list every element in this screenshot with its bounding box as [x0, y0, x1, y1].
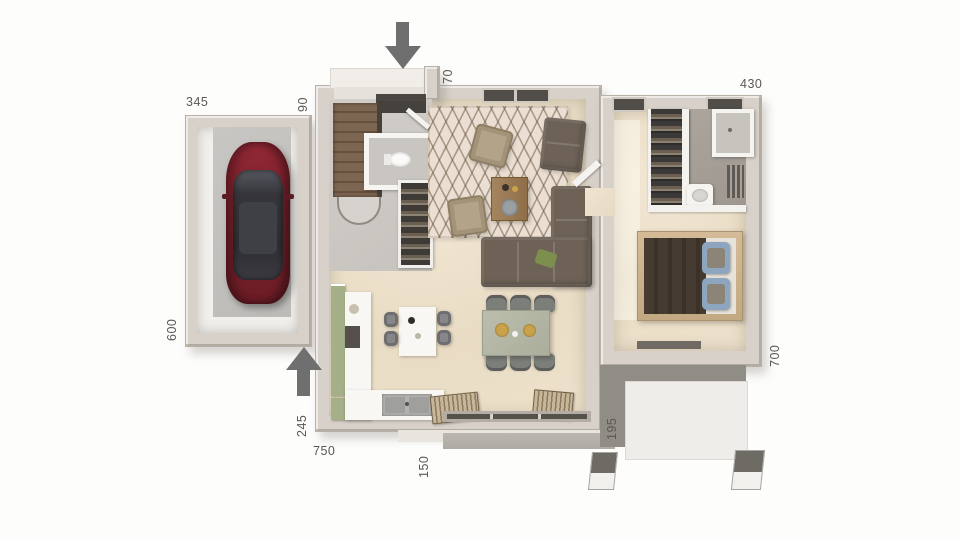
bath-sink — [687, 184, 713, 207]
suite-window-1 — [612, 97, 646, 112]
entry-doormat — [376, 101, 426, 113]
dim-entry-gap: 90 — [296, 97, 310, 112]
island-stool-2 — [384, 331, 398, 346]
island-stool-3 — [437, 311, 451, 326]
bedroom-bench — [637, 341, 701, 349]
window-mullion — [514, 90, 517, 101]
kitchen-tall-cabinets — [331, 284, 345, 396]
kitchen-island — [399, 307, 436, 356]
floor-plan-canvas: 345 90 70 430 600 700 245 750 150 195 — [0, 0, 960, 540]
faucet — [405, 402, 409, 406]
car-roof-panel — [239, 202, 277, 254]
dining-chair-6 — [534, 354, 555, 371]
terrace-slab — [443, 433, 615, 449]
dim-garage-depth: 600 — [165, 319, 179, 341]
plate-2 — [523, 324, 536, 337]
entrance-arrow-down-icon — [384, 22, 422, 70]
island-stool-1 — [384, 312, 398, 327]
dim-porch-depth: 70 — [441, 69, 455, 84]
table-tray — [501, 199, 518, 216]
dining-table — [482, 310, 550, 356]
island-item-dark — [408, 317, 415, 324]
patio — [625, 381, 748, 460]
shower — [712, 109, 754, 157]
table-plant — [502, 184, 509, 191]
pillow-2 — [702, 278, 730, 310]
dining-chair-4 — [486, 354, 507, 371]
radiator — [727, 165, 744, 198]
dim-suite-width: 430 — [740, 77, 762, 91]
kitchen-sink — [382, 394, 432, 416]
patio-pillar-right — [731, 450, 765, 490]
counter-item — [349, 304, 359, 314]
kitchen-counter-bottom — [345, 390, 444, 420]
table-bowl — [512, 186, 518, 192]
patio-pillar-left — [588, 452, 618, 490]
dim-house-width: 750 — [313, 444, 335, 458]
dim-suite-depth: 700 — [768, 345, 782, 367]
car-mirror-left — [222, 194, 231, 199]
sofa-chaise — [539, 117, 586, 173]
red-car — [226, 142, 290, 304]
island-item-light — [415, 333, 421, 339]
living-window — [482, 88, 550, 103]
island-stool-4 — [437, 330, 451, 345]
car-mirror-right — [285, 194, 294, 199]
armchair-2 — [447, 195, 489, 238]
dining-chair-5 — [510, 354, 531, 371]
dim-terrace-path: 195 — [605, 418, 619, 440]
entry-porch-step — [330, 68, 428, 89]
entrance-arrow-up-icon — [285, 347, 323, 397]
pillow-1 — [702, 242, 730, 274]
dim-terrace-depth: 150 — [417, 456, 431, 478]
porch-wall-stub — [424, 66, 440, 101]
kitchen-cabinet-lower — [331, 398, 345, 420]
centerpiece — [512, 331, 518, 337]
shower-drain — [728, 128, 732, 132]
entry-door-leaf — [376, 94, 426, 101]
terrace-path-horizontal — [625, 365, 746, 381]
toilet — [389, 152, 411, 167]
coffee-table — [491, 177, 528, 221]
suite-doorway-gap — [585, 188, 615, 216]
sliding-glass-door — [443, 411, 591, 422]
oven — [345, 326, 360, 348]
toilet-cistern — [384, 154, 391, 165]
bedroom-partition — [648, 205, 746, 212]
dim-kitchen-wall: 245 — [295, 415, 309, 437]
dim-garage-width: 345 — [186, 95, 208, 109]
bed-blanket — [644, 238, 706, 314]
plate-1 — [495, 323, 509, 337]
bed-frame — [637, 231, 743, 321]
